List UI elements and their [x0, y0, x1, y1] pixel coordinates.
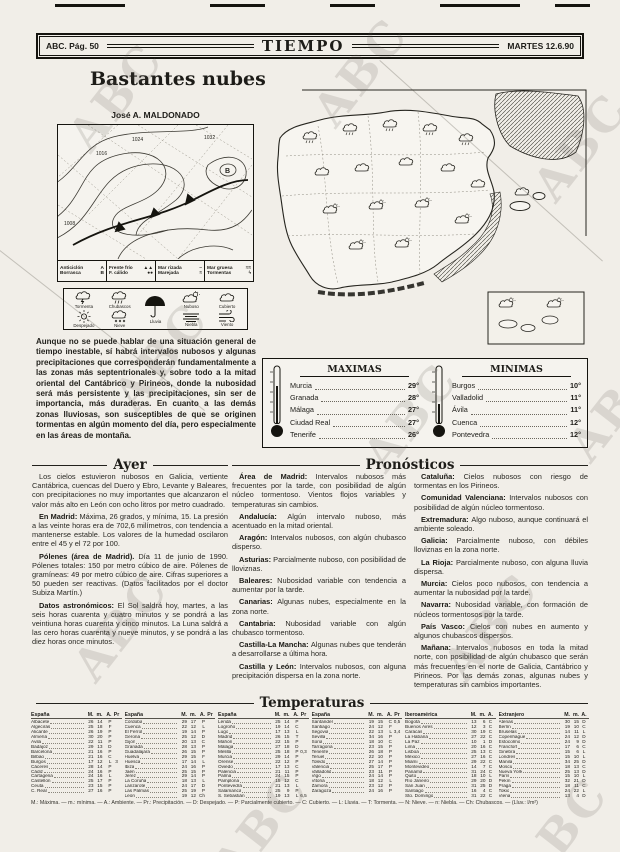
dot-leader — [150, 792, 177, 793]
legend-label: F. cálido — [109, 271, 128, 277]
dot-leader — [492, 438, 567, 439]
city-name: Ávila — [452, 404, 468, 416]
legend-glyph: ϟ — [248, 271, 251, 277]
city-name: Granada — [290, 392, 318, 404]
minimas-title: MINIMAS — [462, 364, 571, 377]
dot-leader — [326, 782, 364, 783]
dot-leader — [420, 753, 467, 754]
region-name: Extremadura: — [421, 515, 471, 524]
region-name: Comunidad Valenciana: — [421, 493, 509, 502]
rule — [36, 703, 254, 704]
column-header: España — [125, 712, 179, 718]
dot-leader — [136, 743, 177, 744]
spain-map-graphic — [258, 86, 590, 352]
forecast-item: Comunidad Valenciana: Intervalos nubosos… — [414, 493, 588, 511]
scan-mark — [55, 4, 125, 7]
temperature-value: 29° — [408, 380, 419, 392]
minimas-rows: Burgos10°Valladolid11°Ávila11°Cuenca12°P… — [452, 380, 581, 441]
table-row: C. Real2716P — [31, 789, 122, 794]
forecast-item: Navarra: Nubosidad variable, con formaci… — [414, 600, 588, 618]
legend-glyph: B — [101, 271, 104, 277]
temp-group: IberoaméricaM.m.A.Bogotá136CBuenos Aires… — [405, 712, 496, 799]
dot-leader — [516, 753, 560, 754]
symbol-storm: Tormenta — [75, 291, 93, 309]
temp-value: 31 — [468, 794, 477, 799]
dot-leader — [513, 763, 560, 764]
isobar-label: 1016 — [96, 151, 107, 157]
temp-value: 16 — [94, 789, 103, 794]
column-header: M. — [365, 712, 374, 718]
fog-icon — [183, 312, 199, 322]
extreme-row: Pontevedra12° — [452, 429, 581, 441]
temperature-value: 27° — [408, 404, 419, 416]
dot-leader — [236, 728, 270, 729]
city-name: Viena — [499, 794, 511, 799]
column-header: m. — [94, 712, 103, 718]
ayer-column: Los cielos estuvieron nubosos en Galicia… — [32, 472, 228, 694]
dot-leader — [329, 787, 364, 788]
synoptic-legend-cell: Mar gruesa≈≈Tormentasϟ — [205, 261, 253, 281]
umbrella-icon — [144, 295, 166, 319]
extreme-row: Málaga27° — [290, 404, 419, 416]
region-name: Andalucía: — [239, 512, 287, 521]
table-footnote: M.: Máxima. — m.: mínima. — A.: Ambiente… — [31, 800, 589, 806]
city-name: Pontevedra — [452, 429, 489, 441]
column-header: España — [31, 712, 85, 718]
rule — [460, 465, 588, 466]
column-header: A. — [290, 712, 299, 718]
dot-leader — [141, 763, 177, 764]
isobar-label: 1032 — [204, 135, 215, 141]
table-row: Zaragoza2416P — [312, 789, 403, 794]
low-pressure-label: B — [225, 168, 230, 175]
city-name: Cuenca — [452, 417, 477, 429]
column-header: Pr — [392, 712, 402, 718]
temp-group: EspañaM.m.A.PrAlbacete2614PAlgeciras2518… — [31, 712, 122, 799]
temp-value: Ch — [196, 794, 205, 799]
temperature-value: 12° — [570, 429, 581, 441]
isobar-label: 1008 — [64, 221, 75, 227]
dot-leader — [334, 723, 364, 724]
dot-leader — [49, 768, 83, 769]
ayer-paragraph: Datos astronómicos: El Sol saldrá hoy, m… — [32, 601, 228, 647]
storm-icon — [75, 291, 92, 304]
dot-leader — [322, 777, 364, 778]
synoptic-map: 1008 1016 1024 1032 B AnticiclónABorrasc… — [57, 124, 254, 282]
dot-leader — [518, 748, 560, 749]
temp-group-header: EspañaM.m.A.Pr — [218, 712, 309, 719]
forecast-item: Asturias: Parcialmente nuboso, con posib… — [232, 555, 406, 573]
temp-value: 19 — [178, 794, 187, 799]
temp-value: 0,3 — [299, 750, 309, 755]
forecast-item: Aragón: Intervalos nubosos, con algún ch… — [232, 533, 406, 551]
city-name: Málaga — [290, 404, 314, 416]
city-name: Murcia — [290, 380, 312, 392]
column-header: m. — [187, 712, 196, 718]
cloud-sun-icon — [182, 291, 200, 304]
legend-label: Tormentas — [207, 271, 231, 277]
region-name: Murcia: — [421, 579, 452, 588]
temp-group-header: EspañaM.m.A.Pr — [125, 712, 216, 719]
dot-leader — [232, 753, 270, 754]
pronosticos-column-1: Área de Madrid: Intervalos nubosos más f… — [232, 472, 406, 694]
symbol-rain: Lluvia — [144, 295, 166, 324]
symbol-label: Tormenta — [75, 304, 93, 309]
extreme-row: Granada28° — [290, 392, 419, 404]
dot-leader — [234, 768, 271, 769]
temp-group-header: ExtranjeroM.m.A. — [499, 712, 590, 719]
region-name: Cataluña: — [421, 472, 464, 481]
dot-leader — [430, 782, 467, 783]
temp-group: EspañaM.m.A.PrLérida2514PLogroño1914CLug… — [218, 712, 309, 799]
temp-value: 24 — [365, 789, 374, 794]
dot-leader — [233, 738, 270, 739]
legend-label: Borrasca — [60, 271, 81, 277]
ayer-heading-text: Ayer — [113, 457, 146, 473]
dot-leader — [512, 787, 560, 788]
symbol-label: Cubierto — [219, 304, 236, 309]
temperature-value: 10° — [570, 380, 581, 392]
dot-leader — [332, 772, 364, 773]
city-name: Ciudad Real — [290, 417, 330, 429]
region-name: Castilla y León: — [239, 662, 300, 671]
dot-leader — [147, 782, 177, 783]
dot-leader — [421, 723, 467, 724]
maximas-title: MAXIMAS — [300, 364, 409, 377]
column-header: A. — [579, 712, 589, 718]
extreme-row: Tenerife26° — [290, 429, 419, 441]
dot-leader — [232, 777, 270, 778]
column-header: M. — [272, 712, 281, 718]
byline: José A. MALDONADO — [57, 110, 254, 120]
dot-leader — [326, 738, 364, 739]
temperature-value: 11° — [570, 404, 581, 416]
symbols-column: Chubascos Nieve — [102, 290, 138, 328]
isobar-chart: 1008 1016 1024 1032 B — [58, 125, 252, 259]
temp-value: D — [579, 794, 589, 799]
spain-weather-map — [258, 86, 590, 352]
city-name: C. Real — [31, 789, 47, 794]
temperaturas-heading: Temperaturas — [36, 695, 588, 711]
temp-value: L — [290, 794, 299, 799]
forecast-item: La Rioja: Parcialmente nuboso, con algun… — [414, 558, 588, 576]
dot-leader — [234, 763, 270, 764]
column-header: Pr — [112, 712, 122, 718]
dot-leader — [425, 792, 467, 793]
symbol-fog: Niebla — [183, 312, 199, 327]
dot-leader — [417, 777, 466, 778]
forecast-item: Andalucía: Algún intervalo nuboso, más a… — [232, 512, 406, 530]
synoptic-legend-entry: BorrascaB — [60, 271, 104, 277]
maximas-list: MAXIMAS Murcia29°Granada28°Málaga27°Ciud… — [290, 364, 419, 443]
dot-leader — [518, 733, 560, 734]
forecast-item: Cataluña: Cielos nubosos con riesgo de t… — [414, 472, 588, 490]
symbols-column: Nuboso Niebla — [173, 290, 209, 328]
extreme-row: Murcia29° — [290, 380, 419, 392]
column-header: Iberoamérica — [405, 712, 468, 718]
dot-leader — [323, 743, 364, 744]
dot-leader — [333, 426, 405, 427]
region-name: Asturias: — [239, 555, 273, 564]
city-name: Tenerife — [290, 429, 316, 441]
symbol-label: Niebla — [185, 322, 197, 327]
column-header: M. — [85, 712, 94, 718]
dot-leader — [50, 723, 83, 724]
dot-leader — [45, 787, 84, 788]
dot-leader — [429, 738, 467, 739]
showers-icon — [111, 291, 128, 304]
dot-leader — [242, 792, 270, 793]
rule — [153, 465, 228, 466]
temp-value: 6,5 — [299, 794, 309, 799]
city-name: Zaragoza — [312, 789, 332, 794]
dot-leader — [434, 797, 466, 798]
symbols-column: Lluvia — [138, 290, 174, 328]
column-header: A. — [383, 712, 392, 718]
symbol-label: Nuboso — [184, 304, 199, 309]
temperaturas-heading-text: Temperaturas — [260, 695, 365, 711]
dot-leader — [480, 426, 567, 427]
dot-leader — [416, 748, 466, 749]
temp-group: EspañaM.m.A.PrSantander1915C0,5Santiago2… — [312, 712, 403, 799]
dot-leader — [317, 414, 405, 415]
thermometer-icon — [431, 364, 446, 440]
dot-leader — [53, 753, 83, 754]
column-header: M. — [468, 712, 477, 718]
city-name: Burgos — [452, 380, 475, 392]
city-name: Valladolid — [452, 392, 483, 404]
dot-leader — [426, 787, 467, 788]
dot-leader — [143, 723, 177, 724]
symbol-cloudy: Nuboso — [182, 291, 200, 309]
dot-leader — [329, 753, 364, 754]
symbols-column: Cubierto Viento — [209, 290, 245, 328]
column-header: M. — [178, 712, 187, 718]
scan-mark — [330, 4, 375, 7]
extreme-row: Cuenca12° — [452, 417, 581, 429]
temp-value: 12 — [187, 794, 196, 799]
temp-value: 13 — [281, 794, 290, 799]
forecast-item: Mañana: Intervalos nubosos en toda la mi… — [414, 643, 588, 689]
dot-leader — [526, 738, 560, 739]
symbol-label: Chubascos — [109, 304, 131, 309]
dot-leader — [471, 414, 568, 415]
region-name: La Rioja: — [421, 558, 456, 567]
temp-value: 16 — [374, 789, 383, 794]
symbol-label: Lluvia — [150, 319, 161, 324]
dot-leader — [430, 768, 466, 769]
synoptic-legend-cell: AnticiclónABorrascaB — [58, 261, 107, 281]
temp-value: 3,4 — [392, 730, 402, 735]
column-header: A. — [486, 712, 496, 718]
paragraph-lead: Datos astronómicos: — [39, 601, 118, 610]
region-name: Aragón: — [239, 533, 270, 542]
paragraph-lead: Pólenes (área de Madrid). — [39, 552, 138, 561]
temp-value: P — [383, 789, 392, 794]
dot-leader — [240, 782, 270, 783]
dot-leader — [486, 401, 567, 402]
column-header: m. — [374, 712, 383, 718]
dot-leader — [434, 728, 467, 729]
scan-mark — [440, 4, 520, 7]
column-header: A. — [196, 712, 205, 718]
symbol-wind: Viento — [218, 310, 236, 327]
forecast-item: Castilla y León: Intervalos nubosos, con… — [232, 662, 406, 680]
extreme-row: Burgos10° — [452, 380, 581, 392]
dot-leader — [144, 748, 177, 749]
dot-leader — [319, 438, 405, 439]
temp-group-header: IberoaméricaM.m.A. — [405, 712, 496, 719]
thermometer-icon — [269, 364, 284, 440]
cloud-icon — [219, 291, 236, 304]
dot-leader — [334, 748, 364, 749]
region-name: País Vasco: — [421, 622, 470, 631]
dot-leader — [229, 733, 270, 734]
synoptic-legend-entry: Marejada≈ — [158, 271, 202, 277]
temperature-value: 12° — [570, 417, 581, 429]
extreme-row: Ávila11° — [452, 404, 581, 416]
dot-leader — [233, 743, 270, 744]
snow-icon — [111, 310, 128, 323]
dot-leader — [54, 777, 84, 778]
temp-value: P — [103, 789, 112, 794]
dot-leader — [237, 772, 271, 773]
table-row: S. Sebastián1913L6,5 — [218, 794, 309, 799]
dot-leader — [48, 738, 83, 739]
forecast-item: Castilla-La Mancha: Algunas nubes que te… — [232, 640, 406, 658]
dot-leader — [151, 753, 177, 754]
wind-icon — [218, 310, 236, 322]
symbol-label: Nieve — [114, 323, 125, 328]
temperature-value: 27° — [408, 417, 419, 429]
pronosticos-heading-text: Pronósticos — [366, 457, 455, 473]
dot-leader — [514, 723, 560, 724]
temp-value: 4 — [570, 794, 579, 799]
region-name: Área de Madrid: — [239, 472, 316, 481]
synoptic-legend-entry: F. cálido●● — [109, 271, 153, 277]
temp-group: EspañaM.m.A.PrCórdoba2917PCuenca2212LEl … — [125, 712, 216, 799]
extremes-panel: MAXIMAS Murcia29°Granada28°Málaga27°Ciud… — [262, 358, 588, 448]
dot-leader — [136, 797, 177, 798]
dot-leader — [135, 768, 177, 769]
table-row: León1912Ch — [125, 794, 216, 799]
table-row: Viena134D — [499, 794, 590, 799]
column-header: España — [218, 712, 272, 718]
dot-leader — [52, 782, 84, 783]
region-name: Cantabria: — [239, 619, 285, 628]
dot-leader — [146, 787, 177, 788]
temp-value: 22 — [477, 794, 486, 799]
dot-leader — [137, 777, 177, 778]
symbol-overcast: Cubierto — [219, 291, 236, 309]
dot-leader — [233, 758, 270, 759]
article-title: Bastantes nubes — [90, 68, 266, 90]
dot-leader — [42, 743, 83, 744]
dot-leader — [141, 738, 177, 739]
dot-leader — [232, 723, 270, 724]
ayer-paragraph: Pólenes (área de Madrid). Día 11 de juni… — [32, 552, 228, 598]
ayer-paragraph: Los cielos estuvieron nubosos en Galicia… — [32, 472, 228, 509]
temp-group: ExtranjeroM.m.A.Atenas3015DBerlín1910CBr… — [499, 712, 590, 799]
dot-leader — [246, 797, 271, 798]
column-header: A. — [103, 712, 112, 718]
forecast-item: Galicia: Parcialmente nuboso, con débile… — [414, 536, 588, 554]
dot-leader — [516, 758, 560, 759]
symbols-column: Tormenta Despejado — [66, 290, 102, 328]
region-name: Navarra: — [421, 600, 455, 609]
extreme-row: Ciudad Real27° — [290, 417, 419, 429]
forecast-item: Murcia: Cielos poco nubosos, con tendenc… — [414, 579, 588, 597]
temperature-value: 28° — [408, 392, 419, 404]
temp-group-header: EspañaM.m.A.Pr — [31, 712, 122, 719]
temperature-value: 11° — [570, 392, 581, 404]
symbols-legend: Tormenta Despejado Chubascos Nieve Lluvi… — [63, 288, 248, 330]
column-header: Pr — [299, 712, 309, 718]
dot-leader — [140, 758, 177, 759]
legend-label: Marejada — [158, 271, 179, 277]
dot-leader — [423, 772, 466, 773]
dot-leader — [421, 758, 467, 759]
rule — [32, 465, 107, 466]
extreme-row: Valladolid11° — [452, 392, 581, 404]
forecast-item: Área de Madrid: Intervalos nubosos más f… — [232, 472, 406, 509]
dot-leader — [513, 768, 560, 769]
forecast-item: Extremadura: Algo nuboso, aunque continu… — [414, 515, 588, 533]
synoptic-legend-entry: Tormentasϟ — [207, 271, 251, 277]
page-header: ABC. Pág. 50 TIEMPO MARTES 12.6.90 — [36, 33, 584, 59]
column-header: Extranjero — [499, 712, 562, 718]
region-name: Castilla-La Mancha: — [239, 640, 311, 649]
legend-glyph: ≈ — [199, 271, 202, 277]
dot-leader — [478, 389, 567, 390]
temp-value: 19 — [272, 794, 281, 799]
dot-leader — [49, 733, 84, 734]
scan-mark — [555, 4, 590, 7]
dot-leader — [510, 792, 560, 793]
column-header: m. — [477, 712, 486, 718]
region-name: Galicia: — [421, 536, 457, 545]
forecast-item: Cantabria: Nubosidad variable con algún … — [232, 619, 406, 637]
ayer-heading: Ayer — [32, 457, 228, 473]
dot-leader — [321, 401, 405, 402]
temp-value: 0,5 — [392, 720, 402, 725]
legend-glyph: ●● — [147, 271, 153, 277]
temp-value: 13 — [561, 794, 570, 799]
forecast-item: Canarias: Algunas nubes, especialmente e… — [232, 597, 406, 615]
dot-leader — [521, 743, 560, 744]
forecast-item: Baleares: Nubosidad variable con tendenc… — [232, 576, 406, 594]
maximas-panel: MAXIMAS Murcia29°Granada28°Málaga27°Ciud… — [263, 359, 425, 447]
table-row: Sto. Domingo3122C — [405, 794, 496, 799]
dot-leader — [512, 728, 560, 729]
region-name: Canarias: — [239, 597, 277, 606]
dot-leader — [512, 782, 561, 783]
dot-leader — [51, 728, 83, 729]
dot-leader — [421, 743, 467, 744]
dot-leader — [523, 772, 560, 773]
symbol-label: Viento — [221, 322, 233, 327]
temp-value: 3 — [112, 760, 122, 765]
dot-leader — [45, 758, 83, 759]
newspaper-page: ABC ABC ABC ABC ABC ABC ABC ABC ABC ABC … — [0, 0, 620, 852]
dot-leader — [44, 772, 84, 773]
pronosticos-column-2: Cataluña: Cielos nubosos con riesgo de t… — [414, 472, 588, 694]
maximas-rows: Murcia29°Granada28°Málaga27°Ciudad Real2… — [290, 380, 419, 441]
dot-leader — [511, 797, 560, 798]
dot-leader — [48, 792, 84, 793]
temp-group-header: EspañaM.m.A.Pr — [312, 712, 403, 719]
dot-leader — [243, 787, 271, 788]
